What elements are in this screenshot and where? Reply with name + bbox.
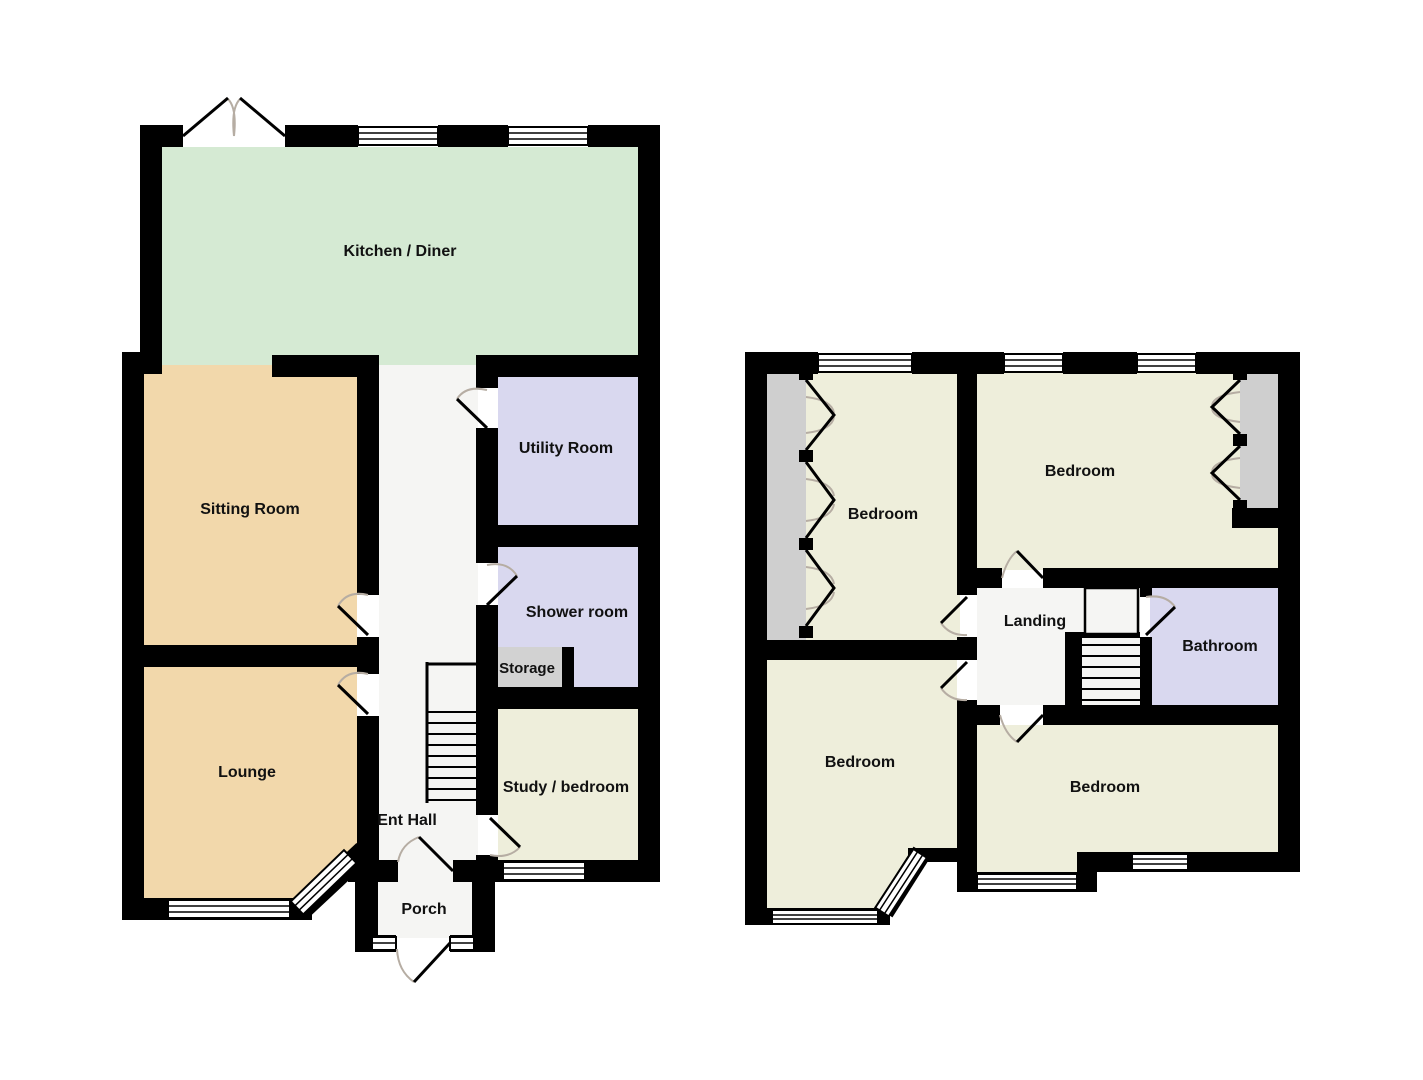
- label-bedroom-front-right: Bedroom: [1045, 463, 1115, 480]
- label-bathroom: Bathroom: [1182, 638, 1258, 655]
- label-sitting-room: Sitting Room: [200, 501, 300, 518]
- window-bedroom-fr-top-2: [1137, 354, 1196, 372]
- label-ent-hall: Ent Hall: [377, 812, 437, 829]
- label-utility-room: Utility Room: [519, 440, 613, 457]
- room-bedroom-front-right: [977, 372, 1280, 570]
- window-lounge-bay-front: [168, 900, 290, 918]
- first-floor-plan: Bedroom Bedroom Bedroom Bedroom Landing …: [745, 352, 1300, 925]
- label-kitchen-diner: Kitchen / Diner: [344, 243, 457, 260]
- wardrobe-front-left: [767, 374, 806, 640]
- label-bedroom-front-left: Bedroom: [848, 506, 918, 523]
- floorplan-canvas: Kitchen / Diner Sitting Room Utility Roo…: [0, 0, 1423, 1080]
- window-bedroom-bl-bay-front: [772, 910, 878, 924]
- label-landing: Landing: [1004, 613, 1066, 630]
- label-lounge: Lounge: [218, 764, 276, 781]
- window-porch-sidelight-left: [372, 937, 396, 950]
- door-porch-external: [397, 943, 450, 982]
- window-bedroom-br-2: [1132, 854, 1188, 870]
- window-kitchen-2: [508, 127, 588, 145]
- door-kitchen-french: [183, 98, 285, 136]
- label-study-bedroom: Study / bedroom: [503, 779, 629, 796]
- window-porch-sidelight-right: [450, 937, 474, 950]
- room-ent-hall: [379, 365, 478, 882]
- window-bedroom-fr-top-1: [1004, 354, 1063, 372]
- window-bedroom-br-1: [977, 874, 1077, 890]
- window-study: [503, 862, 585, 880]
- window-kitchen-1: [358, 127, 438, 145]
- label-bedroom-back-right: Bedroom: [1070, 779, 1140, 796]
- ground-floor-plan: Kitchen / Diner Sitting Room Utility Roo…: [122, 98, 660, 982]
- label-bedroom-back-left: Bedroom: [825, 754, 895, 771]
- room-kitchen-diner: [162, 147, 638, 377]
- room-bedroom-back-left: [767, 660, 957, 914]
- label-shower-room: Shower room: [526, 604, 628, 621]
- label-porch: Porch: [401, 901, 446, 918]
- window-bedroom-fl-top: [818, 354, 912, 372]
- label-storage: Storage: [499, 660, 555, 677]
